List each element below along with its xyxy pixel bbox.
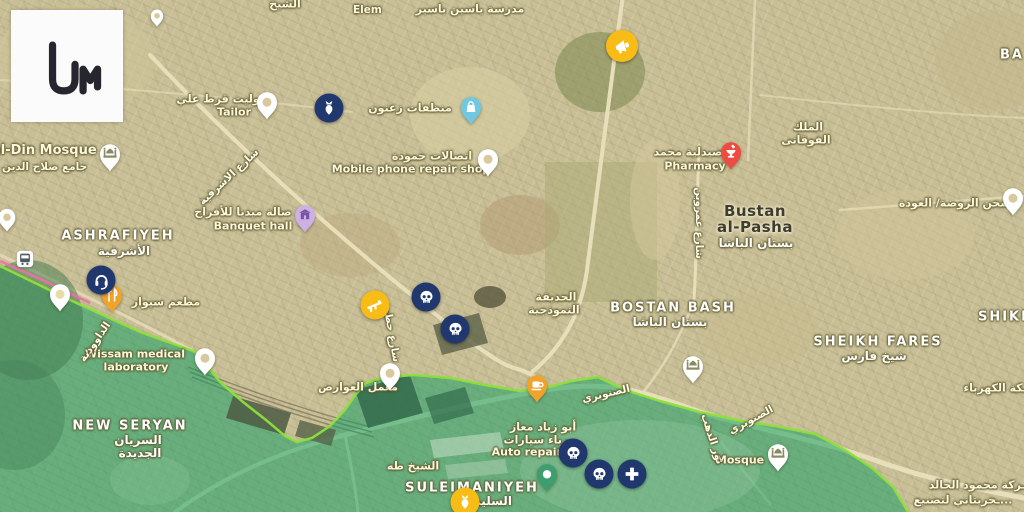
cafe-pin[interactable] — [525, 373, 549, 403]
medical-cross-icon — [623, 465, 642, 484]
skull-icon — [445, 319, 465, 339]
poi-label-laundry-ar: منظفات زعنون — [368, 102, 452, 115]
poi-label-banquet-ar: صالة ميديا للأفراح — [194, 206, 291, 219]
poi-dot-icon — [3, 214, 11, 222]
casualties-marker-4[interactable] — [585, 460, 614, 489]
poi-label-pharmacy-ar: صيدلية محمد — [653, 146, 722, 159]
skull-icon — [416, 287, 436, 307]
casualties-marker-2[interactable] — [441, 315, 470, 344]
poi-label-park-ar: الحديقة — [536, 291, 577, 304]
poi-dot-icon — [263, 98, 272, 107]
park-poi-pin[interactable] — [535, 462, 559, 492]
headphones-icon — [91, 270, 111, 290]
poi-dot-icon — [543, 470, 551, 478]
poi-label-sheikh-taha-ar: الشيخ طه — [387, 460, 439, 473]
explosion-marker[interactable] — [451, 488, 480, 512]
district-label-al-pasha: al-Pasha — [717, 218, 793, 236]
district-label-new-seryan: NEW SERYAN — [72, 419, 187, 434]
pharmacy-pin[interactable] — [719, 140, 743, 170]
rifle-icon — [365, 295, 386, 316]
poi-label-tailor: Tailor — [217, 106, 251, 119]
firefight-marker[interactable] — [361, 291, 390, 320]
district-label-bostan-bash: BOSTAN BASH — [610, 301, 736, 316]
poi-label-malik-ar2: الفوقانى — [781, 134, 830, 147]
casualties-marker-1[interactable] — [412, 283, 441, 312]
medical-marker[interactable] — [618, 460, 647, 489]
district-label-new-seryan-ar2: الجديدة — [119, 446, 162, 460]
wissam-lab-pin[interactable] — [193, 346, 217, 376]
poi-label-autorepair-ar: أبو زياد معاز — [510, 421, 576, 434]
megaphone-icon — [612, 36, 633, 57]
poi-label-school-en-cut: Elem — [353, 4, 382, 16]
shelling-marker[interactable] — [315, 94, 344, 123]
poi-label-malik-ar: الملك — [793, 121, 823, 134]
district-label-ashrafiyeh: ASHRAFIYEH — [61, 229, 174, 244]
district-label-bustan-ar: بستان الباشا — [719, 236, 794, 250]
poi-label-electric-company-ar: ـكة الكهرباء — [964, 382, 1024, 395]
map-canvas[interactable]: ASHRAFIYEH الأشرفية NEW SERYAN السريان ا… — [0, 0, 1024, 512]
street-label-amr-bin: شارع عمروبن — [693, 187, 705, 259]
rawda-shipping-pin[interactable] — [1001, 186, 1024, 216]
poi-label-phone-repair: Mobile phone repair shop — [332, 163, 491, 176]
transit-station-pin[interactable] — [16, 250, 34, 272]
skull-icon — [589, 464, 609, 484]
district-label-new-seryan-ar: السريان — [114, 433, 162, 447]
poi-label-wissam-lab: Wissam medical — [85, 348, 185, 361]
audio-report-marker[interactable] — [87, 266, 116, 295]
bomb-icon — [320, 99, 339, 118]
bomb-icon — [456, 493, 475, 512]
poi-label-aldin-mosque: al-Din Mosque — [0, 143, 97, 158]
mosque-pin-bostan[interactable] — [681, 354, 705, 384]
poi-dot-icon — [201, 354, 210, 363]
poi-label-company-ar2: ـحريتاني لتصنيع... — [914, 494, 1013, 507]
tailor-pin[interactable] — [255, 90, 279, 120]
poi-label-rawda-shipping-ar: شحن الروضة/ العودة — [899, 197, 1011, 210]
awarid-factory-pin[interactable] — [378, 361, 402, 391]
poi-label-wissam-lab2: laboratory — [104, 361, 169, 374]
banquet-hall-pin[interactable] — [293, 203, 317, 233]
poi-dot-icon — [56, 290, 65, 299]
district-label-shikh-cut: SHIKH — [978, 310, 1024, 325]
district-label-ashrafiyeh-ar: الأشرفية — [98, 244, 150, 258]
small-top-pin[interactable] — [150, 8, 165, 27]
poi-label-school-ar: مدرسة ياسين باسير — [416, 3, 525, 16]
poi-label-tailor-ar: جوليت قرط علي — [176, 93, 267, 106]
poi-label-sheikh-cut-ar: الشيخ — [269, 0, 301, 11]
poi-dot-icon — [154, 13, 160, 19]
poi-pin-left[interactable] — [48, 282, 72, 312]
poi-label-restaurant-ar: مطعم سيوار — [132, 296, 201, 309]
poi-dot-icon — [484, 155, 493, 164]
poi-dot-icon — [386, 369, 395, 378]
mosque-pin-suleimaniyeh[interactable] — [766, 442, 790, 472]
announcement-marker[interactable] — [606, 30, 638, 62]
liveuamap-logo[interactable] — [11, 10, 123, 122]
district-label-bostan-bash-ar: بستان الباشا — [633, 315, 708, 329]
poi-label-pharmacy: Pharmacy — [664, 160, 725, 173]
poi-dot-icon — [1009, 194, 1018, 203]
poi-label-banquet: Banquet hall — [214, 220, 293, 233]
district-label-sheikh-fares: SHEIKH FARES — [813, 335, 942, 350]
edge-poi-pin[interactable] — [0, 207, 17, 232]
laundry-pin[interactable] — [459, 95, 483, 125]
poi-label-company-ar: ـركة محمود الخالد — [929, 479, 1024, 492]
phone-repair-pin[interactable] — [476, 147, 500, 177]
district-label-ba-cut: BA — [1000, 48, 1024, 63]
skull-icon — [563, 443, 583, 463]
poi-label-telecom-ar: اتصالات حمودة — [392, 150, 472, 163]
poi-label-park-ar2: النموذجية — [528, 304, 579, 317]
mosque-pin-aldin[interactable] — [98, 142, 122, 172]
district-label-sheikh-fares-ar: شيخ فارس — [841, 349, 906, 363]
casualties-marker-3[interactable] — [559, 439, 588, 468]
poi-label-aldin-mosque-ar: جامع صلاح الدين — [2, 161, 87, 173]
liveuamap-lm-icon — [22, 21, 112, 111]
